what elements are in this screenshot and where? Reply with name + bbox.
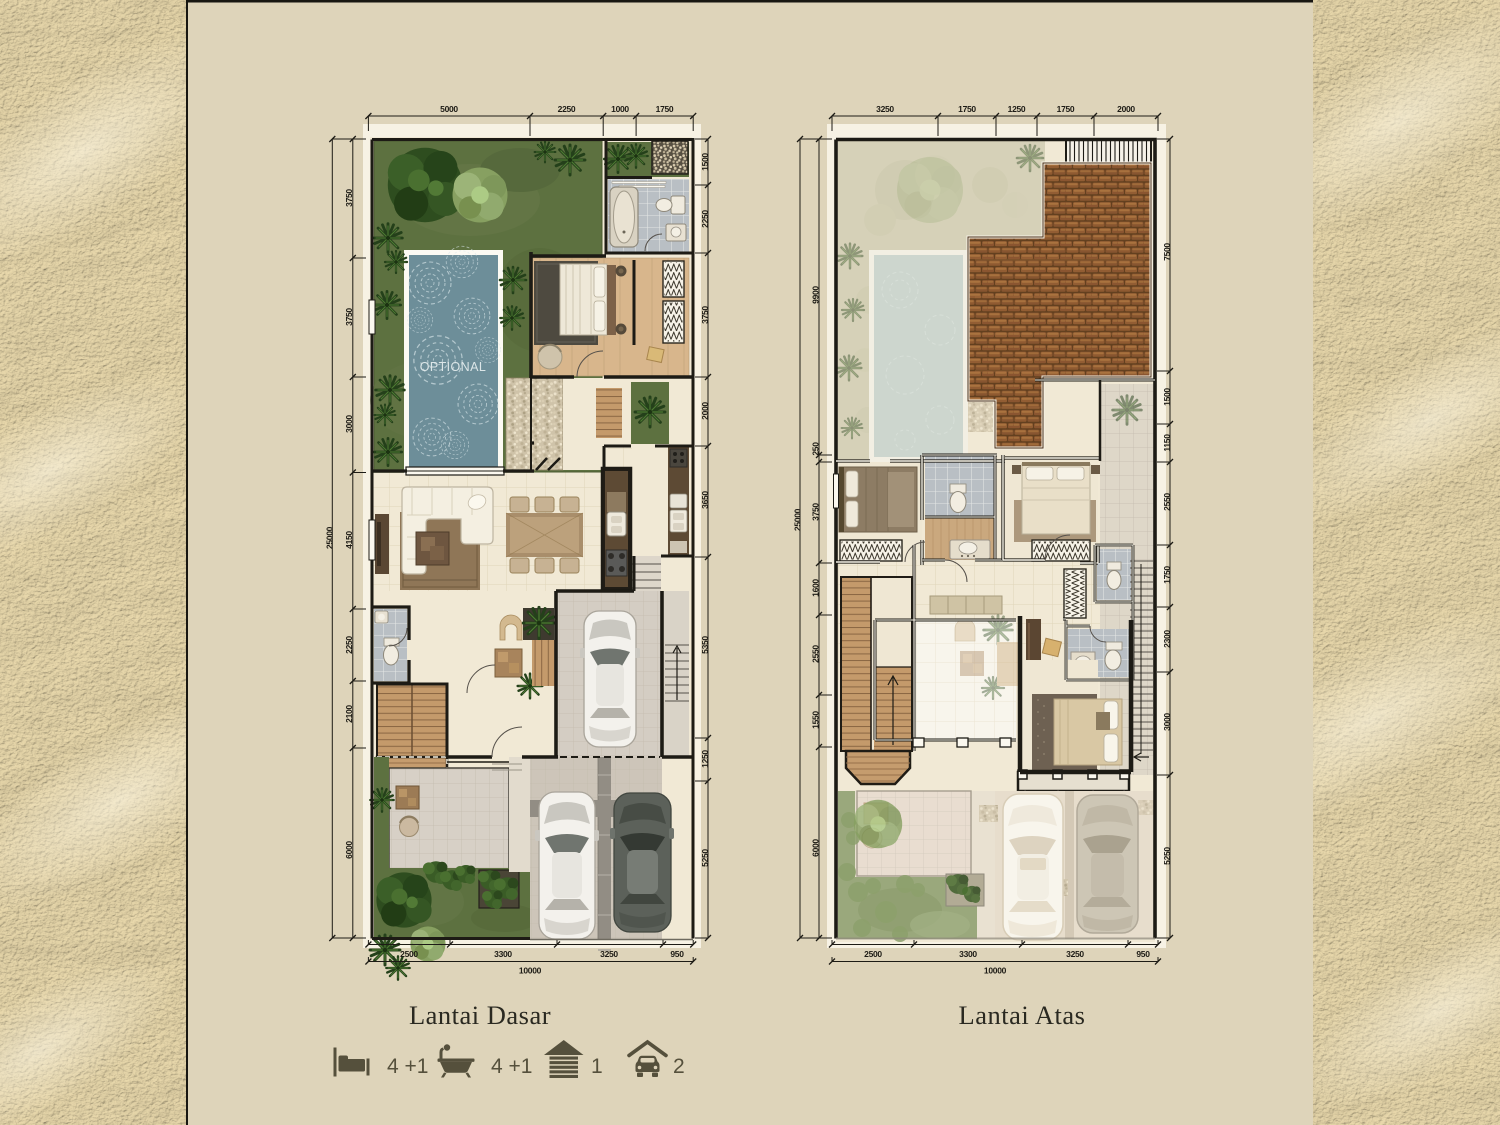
svg-text:10000: 10000 — [519, 966, 542, 976]
svg-text:1000: 1000 — [611, 104, 629, 114]
svg-text:3750: 3750 — [811, 503, 821, 521]
svg-text:6000: 6000 — [811, 839, 821, 857]
svg-text:25000: 25000 — [325, 526, 335, 549]
svg-text:1750: 1750 — [1057, 104, 1075, 114]
svg-text:1750: 1750 — [656, 104, 674, 114]
svg-text:3250: 3250 — [600, 949, 618, 959]
svg-text:7500: 7500 — [1162, 243, 1172, 261]
svg-text:2500: 2500 — [400, 949, 418, 959]
svg-text:1250: 1250 — [700, 750, 710, 768]
svg-text:2100: 2100 — [344, 705, 354, 723]
svg-text:OPTIONAL: OPTIONAL — [420, 360, 486, 374]
svg-text:3000: 3000 — [1162, 713, 1172, 731]
svg-text:3300: 3300 — [494, 949, 512, 959]
svg-text:950: 950 — [670, 949, 684, 959]
svg-text:3750: 3750 — [700, 306, 710, 324]
svg-text:2: 2 — [673, 1055, 685, 1078]
svg-text:25000: 25000 — [793, 508, 803, 531]
svg-text:1750: 1750 — [958, 104, 976, 114]
svg-text:10000: 10000 — [984, 966, 1007, 976]
svg-text:5250: 5250 — [1162, 847, 1172, 865]
svg-text:1: 1 — [591, 1055, 603, 1078]
svg-text:1600: 1600 — [811, 579, 821, 597]
svg-text:2500: 2500 — [864, 949, 882, 959]
svg-text:2000: 2000 — [700, 402, 710, 420]
svg-text:1500: 1500 — [1162, 388, 1172, 406]
svg-text:2250: 2250 — [344, 636, 354, 654]
svg-text:3750: 3750 — [344, 189, 354, 207]
svg-text:2550: 2550 — [1162, 493, 1172, 511]
svg-text:4 +1: 4 +1 — [387, 1055, 428, 1078]
svg-text:3750: 3750 — [344, 308, 354, 326]
svg-text:950: 950 — [1136, 949, 1150, 959]
svg-text:9900: 9900 — [811, 286, 821, 304]
svg-text:2000: 2000 — [1117, 104, 1135, 114]
svg-text:1550: 1550 — [811, 711, 821, 729]
svg-text:4150: 4150 — [344, 531, 354, 549]
svg-text:6000: 6000 — [344, 841, 354, 859]
svg-text:1500: 1500 — [700, 153, 710, 171]
svg-text:Lantai Dasar: Lantai Dasar — [409, 1000, 551, 1030]
svg-text:5250: 5250 — [700, 849, 710, 867]
svg-text:1750: 1750 — [1162, 566, 1172, 584]
svg-text:2250: 2250 — [558, 104, 576, 114]
svg-text:2250: 2250 — [700, 210, 710, 228]
svg-text:3250: 3250 — [1066, 949, 1084, 959]
svg-text:3250: 3250 — [876, 104, 894, 114]
svg-text:3300: 3300 — [959, 949, 977, 959]
svg-text:2300: 2300 — [1162, 630, 1172, 648]
svg-text:5000: 5000 — [440, 104, 458, 114]
svg-text:1250: 1250 — [1008, 104, 1026, 114]
svg-text:3650: 3650 — [700, 491, 710, 509]
svg-text:2550: 2550 — [811, 645, 821, 663]
svg-text:1150: 1150 — [1162, 434, 1172, 452]
svg-text:4 +1: 4 +1 — [491, 1055, 532, 1078]
svg-text:250: 250 — [811, 442, 821, 456]
svg-text:5350: 5350 — [700, 636, 710, 654]
svg-text:Lantai Atas: Lantai Atas — [959, 1000, 1086, 1030]
svg-text:3000: 3000 — [344, 415, 354, 433]
